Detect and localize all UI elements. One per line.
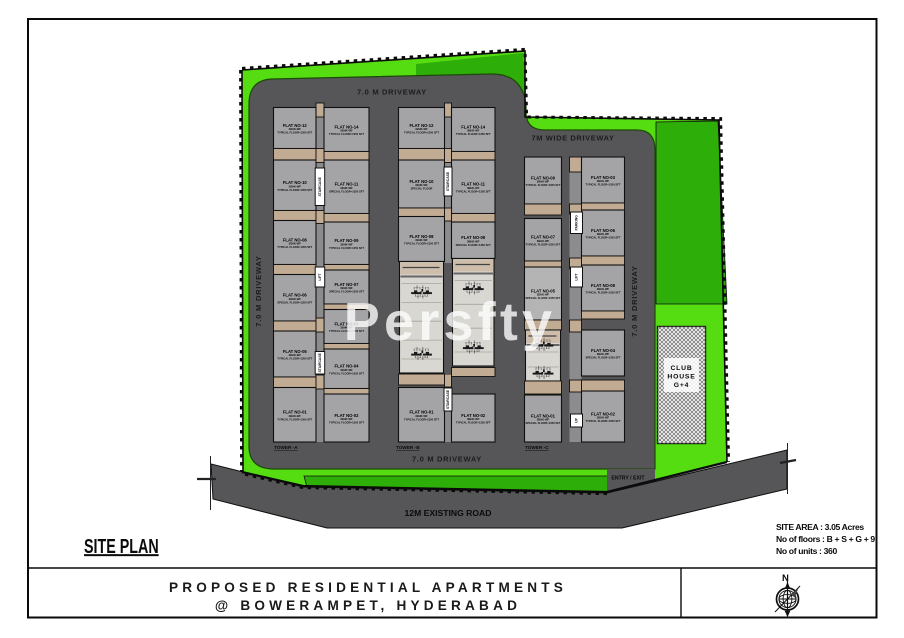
svg-text:7.0 M DRIVEWAY: 7.0 M DRIVEWAY	[357, 88, 427, 97]
svg-text:FLAT NO-02: FLAT NO-02	[335, 413, 360, 418]
svg-text:FLAT NO-12: FLAT NO-12	[410, 123, 435, 128]
svg-text:3BHK-WF: 3BHK-WF	[597, 287, 610, 291]
svg-text:TYPICAL FLOOR=1350 SFT: TYPICAL FLOOR=1350 SFT	[329, 371, 364, 375]
svg-text:FLAT NO-02: FLAT NO-02	[591, 411, 616, 416]
svg-text:7.0 M DRIVEWAY: 7.0 M DRIVEWAY	[254, 255, 263, 326]
svg-text:3BHK-WF: 3BHK-WF	[597, 352, 610, 356]
svg-text:3BHK-WF: 3BHK-WF	[467, 239, 480, 243]
svg-text:3BHK-WF: 3BHK-WF	[537, 239, 550, 243]
svg-text:STAIRCASE: STAIRCASE	[446, 389, 450, 409]
svg-text:FLAT NO-10: FLAT NO-10	[283, 180, 308, 185]
svg-text:3BHK-WF: 3BHK-WF	[597, 416, 610, 420]
svg-text:3BHK-WF: 3BHK-WF	[537, 418, 550, 422]
svg-text:No of floors : B + S + G + 9: No of floors : B + S + G + 9	[776, 534, 875, 544]
svg-text:3BHK-WF: 3BHK-WF	[340, 129, 353, 133]
svg-text:FLAT NO-02: FLAT NO-02	[461, 413, 486, 418]
svg-text:SPECIAL FLOOR=1350 SFT: SPECIAL FLOOR=1350 SFT	[456, 243, 491, 247]
svg-text:STAIRCASE: STAIRCASE	[446, 171, 450, 191]
svg-text:3BHK-WF: 3BHK-WF	[415, 238, 428, 242]
svg-text:3BHK-WF: 3BHK-WF	[467, 129, 480, 133]
svg-text:3BHK-WF: 3BHK-WF	[537, 180, 550, 184]
svg-text:SPECIAL FLOOR=1350 SFT: SPECIAL FLOOR=1350 SFT	[329, 189, 364, 193]
svg-text:TOWER -B: TOWER -B	[396, 445, 420, 450]
svg-text:FLAT NO-08: FLAT NO-08	[591, 283, 616, 288]
svg-text:TYPICAL FLOOR=1350 SFT: TYPICAL FLOOR=1350 SFT	[526, 242, 561, 246]
svg-text:STAIRCASE: STAIRCASE	[318, 352, 322, 372]
svg-text:LIFT: LIFT	[318, 272, 322, 280]
svg-text:UP: UP	[575, 417, 579, 422]
svg-text:FLAT NO-08: FLAT NO-08	[410, 234, 435, 239]
svg-text:SITE AREA : 3.05 Acres: SITE AREA : 3.05 Acres	[776, 522, 864, 532]
svg-text:CLUB: CLUB	[670, 365, 692, 372]
svg-text:@ BOWERAMPET, HYDERABAD: @ BOWERAMPET, HYDERABAD	[215, 598, 521, 613]
svg-text:FLAT NO-11: FLAT NO-11	[335, 182, 359, 187]
svg-text:7.0 M DRIVEWAY: 7.0 M DRIVEWAY	[630, 265, 639, 336]
svg-text:TYPICAL FLOOR=1350 SFT: TYPICAL FLOOR=1350 SFT	[586, 419, 621, 423]
svg-text:TYPICAL FLOOR=1350 SFT: TYPICAL FLOOR=1350 SFT	[329, 421, 364, 425]
svg-text:FLAT NO-12: FLAT NO-12	[283, 123, 308, 128]
svg-text:3BHK-WF: 3BHK-WF	[467, 417, 480, 421]
svg-text:TOWER -C: TOWER -C	[525, 445, 549, 450]
svg-text:HOUSE: HOUSE	[667, 374, 695, 381]
svg-text:3BHK-WF: 3BHK-WF	[597, 179, 610, 183]
svg-text:3BHK-WF: 3BHK-WF	[340, 186, 353, 190]
svg-text:STAIRCASE: STAIRCASE	[318, 176, 322, 196]
svg-text:FLAT NO-01: FLAT NO-01	[531, 413, 556, 418]
svg-text:TYPICAL FLOOR=1350 SFT: TYPICAL FLOOR=1350 SFT	[404, 417, 439, 421]
svg-text:3BHK-WF: 3BHK-WF	[415, 414, 428, 418]
svg-text:TYPICAL FLOOR=1350 SFT: TYPICAL FLOOR=1350 SFT	[456, 132, 491, 136]
svg-text:PROPOSED RESIDENTIAL APARTMENT: PROPOSED RESIDENTIAL APARTMENTS	[169, 580, 567, 595]
svg-text:TYPICAL FLOOR=1350 SFT: TYPICAL FLOOR=1350 SFT	[277, 357, 312, 361]
svg-text:FLAT NO-06: FLAT NO-06	[283, 293, 308, 298]
svg-text:FLAT NO-10: FLAT NO-10	[410, 179, 435, 184]
svg-text:3BHK-WF: 3BHK-WF	[340, 242, 353, 246]
svg-text:Persfty: Persfty	[344, 292, 557, 352]
svg-text:FLAT NO-04: FLAT NO-04	[335, 364, 360, 369]
svg-text:TYPICAL FLOOR=1350 SFT: TYPICAL FLOOR=1350 SFT	[329, 132, 364, 136]
svg-text:3BHK-WF: 3BHK-WF	[415, 183, 428, 187]
svg-text:SPECIAL FLOOR=1350 SFT: SPECIAL FLOOR=1350 SFT	[585, 356, 620, 360]
svg-text:SPECIAL FLOOR: SPECIAL FLOOR	[411, 187, 433, 191]
svg-text:FLAT NO-07: FLAT NO-07	[531, 235, 556, 240]
svg-text:LIFT: LIFT	[575, 272, 579, 280]
svg-text:7.0 M DRIVEWAY: 7.0 M DRIVEWAY	[412, 455, 482, 464]
svg-text:PARKING: PARKING	[575, 215, 579, 231]
svg-text:3BHK-WF: 3BHK-WF	[597, 232, 610, 236]
svg-text:FLAT NO-08: FLAT NO-08	[283, 237, 308, 242]
svg-text:TYPICAL FLOOR=1350 SFT: TYPICAL FLOOR=1350 SFT	[329, 246, 364, 250]
svg-text:3BHK-WF: 3BHK-WF	[415, 127, 428, 131]
svg-text:FLAT NO-03: FLAT NO-03	[591, 175, 616, 180]
svg-text:FLAT NO-04: FLAT NO-04	[591, 348, 616, 353]
svg-text:3BHK-WF: 3BHK-WF	[289, 127, 302, 131]
svg-text:TOWER -A: TOWER -A	[274, 445, 298, 450]
svg-text:FLAT NO-01: FLAT NO-01	[283, 410, 308, 415]
svg-text:FLAT NO-01: FLAT NO-01	[410, 410, 435, 415]
svg-text:ENTRY / EXIT: ENTRY / EXIT	[611, 476, 645, 482]
svg-text:SPECIAL FLOOR=1350 SFT: SPECIAL FLOOR=1350 SFT	[525, 421, 560, 425]
svg-text:SITE PLAN: SITE PLAN	[84, 535, 159, 558]
svg-text:3BHK-WF: 3BHK-WF	[289, 297, 302, 301]
svg-text:TYPICAL FLOOR=1350 SFT: TYPICAL FLOOR=1350 SFT	[277, 188, 312, 192]
svg-text:3BHK-WF: 3BHK-WF	[340, 286, 353, 290]
svg-text:FLAT NO-14: FLAT NO-14	[335, 124, 360, 129]
svg-text:3BHK-WF: 3BHK-WF	[289, 242, 302, 246]
svg-text:3BHK-WF: 3BHK-WF	[289, 184, 302, 188]
svg-text:TYPICAL FLOOR=1350 SFT: TYPICAL FLOOR=1350 SFT	[277, 245, 312, 249]
svg-text:7M WIDE DRIVEWAY: 7M WIDE DRIVEWAY	[531, 134, 614, 143]
svg-text:TYPICAL FLOOR=1350 SFT: TYPICAL FLOOR=1350 SFT	[277, 417, 312, 421]
svg-text:FLAT NO-09: FLAT NO-09	[335, 238, 360, 243]
svg-text:FLAT NO-05: FLAT NO-05	[283, 349, 308, 354]
svg-text:FLAT NO-11: FLAT NO-11	[461, 182, 485, 187]
svg-text:SPECIAL FLOOR=1350 SFT: SPECIAL FLOOR=1350 SFT	[277, 300, 312, 304]
svg-text:FLAT NO-07: FLAT NO-07	[335, 282, 360, 287]
svg-text:FLAT NO-09: FLAT NO-09	[461, 235, 486, 240]
svg-text:TYPICAL FLOOR=1350 SFT: TYPICAL FLOOR=1350 SFT	[404, 242, 439, 246]
svg-text:FLAT NO-09: FLAT NO-09	[531, 175, 556, 180]
svg-text:3BHK-WF: 3BHK-WF	[340, 417, 353, 421]
svg-text:TYPICAL FLOOR=1350 SFT: TYPICAL FLOOR=1350 SFT	[586, 291, 621, 295]
svg-text:TYPICAL FLOOR=1350 SFT: TYPICAL FLOOR=1350 SFT	[404, 131, 439, 135]
svg-text:No of units : 360: No of units : 360	[776, 546, 837, 556]
svg-text:3BHK-WF: 3BHK-WF	[289, 353, 302, 357]
svg-text:TYPICAL FLOOR=1350 SFT: TYPICAL FLOOR=1350 SFT	[456, 189, 491, 193]
svg-text:FLAT NO-14: FLAT NO-14	[461, 124, 486, 129]
svg-text:3BHK-WF: 3BHK-WF	[289, 414, 302, 418]
svg-text:TYPICAL FLOOR=1350 SFT: TYPICAL FLOOR=1350 SFT	[456, 421, 491, 425]
svg-text:TYPICAL FLOOR=1350 SFT: TYPICAL FLOOR=1350 SFT	[586, 236, 621, 240]
svg-text:TYPICAL FLOOR=1350 SFT: TYPICAL FLOOR=1350 SFT	[526, 183, 561, 187]
svg-text:TYPICAL FLOOR=1350 SFT: TYPICAL FLOOR=1350 SFT	[586, 183, 621, 187]
svg-text:TYPICAL FLOOR=1350 SFT: TYPICAL FLOOR=1350 SFT	[277, 131, 312, 135]
svg-text:3BHK-WF: 3BHK-WF	[340, 368, 353, 372]
svg-text:FLAT NO-06: FLAT NO-06	[591, 228, 616, 233]
svg-text:12M EXISTING ROAD: 12M EXISTING ROAD	[405, 508, 492, 518]
svg-text:3BHK-WF: 3BHK-WF	[467, 186, 480, 190]
svg-text:G+4: G+4	[674, 382, 689, 389]
